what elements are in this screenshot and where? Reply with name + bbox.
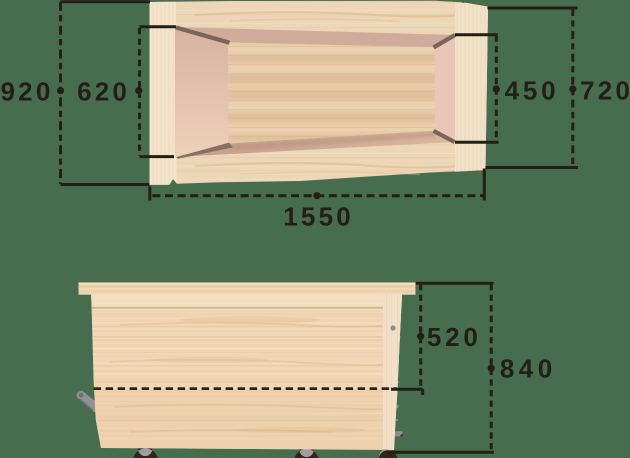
svg-text:520: 520 — [427, 322, 482, 352]
svg-text:620: 620 — [77, 76, 130, 106]
svg-text:720: 720 — [580, 75, 630, 105]
svg-text:1550: 1550 — [283, 201, 354, 231]
svg-text:840: 840 — [500, 354, 557, 384]
svg-text:920: 920 — [1, 76, 54, 106]
svg-text:450: 450 — [505, 75, 560, 105]
